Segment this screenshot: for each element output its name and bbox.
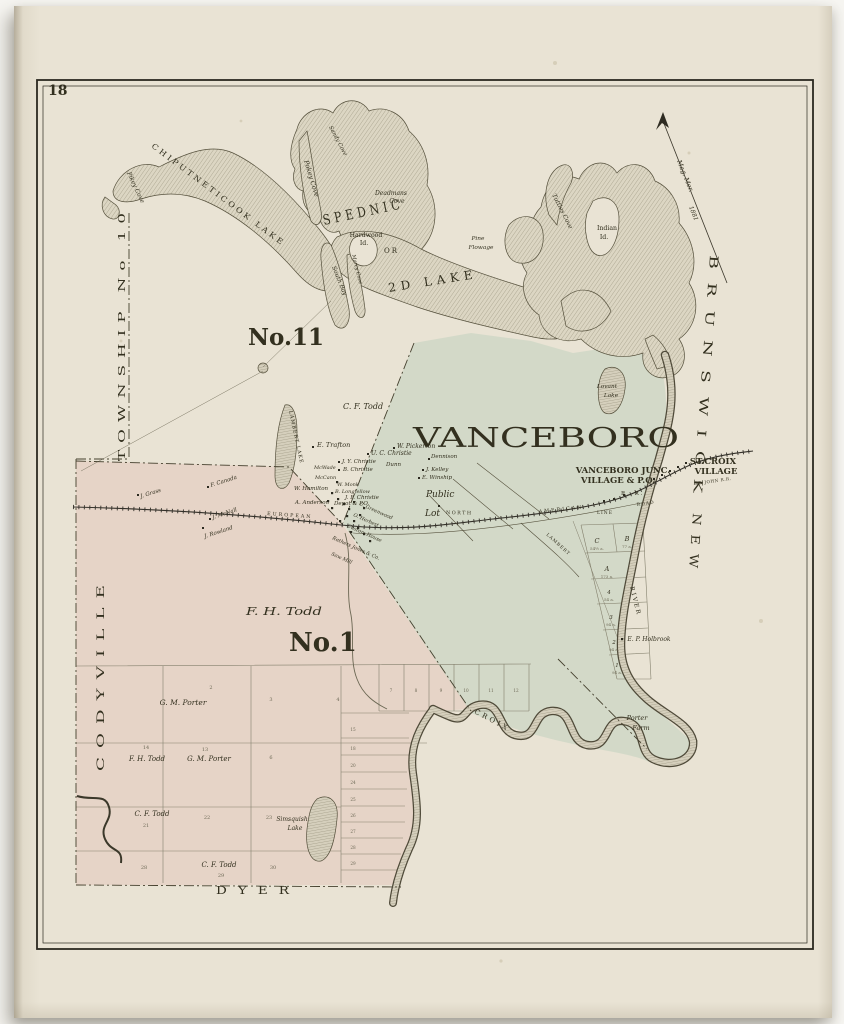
village-lot-acres: 173 a. bbox=[601, 574, 614, 579]
village-lot-acres: 54 a. bbox=[604, 597, 614, 602]
lot-number: 22 bbox=[204, 815, 210, 821]
east-lot-number: 20 bbox=[350, 763, 356, 768]
village-lot-id: 2 bbox=[611, 640, 616, 646]
label-deadmans-1: Deadmans bbox=[374, 190, 407, 197]
label-st-croix-2: VILLAGE bbox=[694, 467, 738, 477]
label-public-lot: Lot bbox=[424, 509, 440, 519]
east-lot-number: 29 bbox=[350, 861, 356, 866]
label-rr: R. R. bbox=[621, 491, 645, 497]
lot-number: 23 bbox=[266, 815, 272, 821]
label-indian-2: Id. bbox=[600, 234, 608, 241]
label-river: RIVER bbox=[628, 586, 642, 617]
label-vanceboro-junction-2: VILLAGE & P.O. bbox=[580, 476, 655, 486]
settler-dennison: Dennison bbox=[430, 454, 458, 460]
strip-lot-number: 11 bbox=[488, 688, 494, 693]
lot-number: 4 bbox=[336, 697, 339, 703]
village-lot-acres: 94 a. bbox=[612, 670, 622, 675]
label-vanceboro: VANCEBORO bbox=[412, 423, 679, 454]
label-deadmans-2: Cove bbox=[389, 198, 405, 205]
settler-a-anderson: A. Anderson bbox=[294, 500, 330, 506]
village-lot-acres: 54½ a. bbox=[590, 546, 604, 551]
east-lot-number: 26 bbox=[350, 813, 356, 818]
survey-pond bbox=[258, 363, 268, 373]
label-no1: No.1 bbox=[289, 628, 357, 658]
settler-cf-todd: C. F. Todd bbox=[343, 402, 383, 411]
village-lot-id: 4 bbox=[606, 590, 611, 596]
strip-lot-number: 8 bbox=[415, 688, 418, 693]
label-st-croix-1: ST.CROIX bbox=[690, 457, 737, 467]
lot-number: 13 bbox=[202, 747, 208, 753]
settler-w-hamilton: W. Hamilton bbox=[294, 486, 329, 492]
village-lot-acres: 94 a. bbox=[606, 622, 616, 627]
settler-w-monk: W. Monk bbox=[337, 482, 359, 488]
village-lot-id: B bbox=[624, 535, 630, 543]
label-simsquish-2: Lake bbox=[287, 825, 303, 832]
settler-w-pickerton: W. Pickerton bbox=[397, 443, 435, 450]
lot-owner-cf-todd-2: C. F. Todd bbox=[201, 861, 237, 869]
village-lot-id: 1 bbox=[615, 663, 619, 669]
settler-ep-holbrook: E. P. Holbrook bbox=[626, 636, 671, 643]
margin-dyer: DYER bbox=[216, 884, 300, 897]
label-hardwood-2: Id. bbox=[360, 240, 368, 247]
east-lot-number: 25 bbox=[350, 797, 356, 802]
label-public: Public bbox=[425, 490, 454, 500]
strip-lot-number: 9 bbox=[440, 688, 443, 693]
label-or: OR bbox=[384, 247, 399, 255]
margin-codyville: CODYVILLE bbox=[96, 576, 107, 771]
label-hardwood-1: Hardwood bbox=[350, 232, 383, 239]
map-canvas: 18 TOWNSHIP No 10 CODYVILLE DYER BRUNSWI… bbox=[14, 6, 832, 1018]
village-lot-acres: 94 a. bbox=[609, 647, 619, 652]
label-lovant-1: Lovant bbox=[596, 384, 618, 390]
settler-dunn: Dunn bbox=[385, 462, 401, 468]
lot-number: 29 bbox=[218, 873, 224, 879]
settler-porter-farm-1: Porter bbox=[626, 714, 649, 722]
lot-number: 3 bbox=[269, 697, 272, 703]
compass-arrow-icon bbox=[656, 112, 669, 130]
label-line: LINE bbox=[597, 510, 613, 516]
settler-porter-farm-2: Farm bbox=[631, 724, 649, 732]
label-no11: No.11 bbox=[248, 324, 324, 351]
lot-owner-fh-todd: F. H. Todd bbox=[128, 755, 166, 763]
settler-b-christie: B. Christie bbox=[342, 467, 373, 473]
strip-lot-number: 7 bbox=[390, 688, 393, 693]
strip-lot-number: 12 bbox=[513, 688, 519, 693]
margin-township-no10: TOWNSHIP No 10 bbox=[117, 206, 128, 461]
atlas-page: 18 TOWNSHIP No 10 CODYVILLE DYER BRUNSWI… bbox=[14, 6, 832, 1018]
label-simsquish-1: Simsquish bbox=[276, 816, 308, 823]
settler-uc-christie: U. C. Christie bbox=[371, 450, 412, 457]
lot-number: 21 bbox=[143, 823, 149, 829]
lot-number: 30 bbox=[270, 865, 276, 871]
lot-owner-gm-porter-1: G. M. Porter bbox=[160, 698, 207, 707]
village-lot-acres: 77 a. bbox=[622, 544, 632, 549]
settler-j-kelley: J. Kelley bbox=[425, 467, 449, 473]
village-lot-id: 3 bbox=[609, 615, 613, 621]
lot-owner-cf-todd-1: C. F. Todd bbox=[134, 810, 170, 818]
lot-number: 6 bbox=[269, 755, 272, 761]
label-lovant-2: Lake bbox=[603, 393, 619, 399]
settler-e-winship: E. Winship bbox=[421, 475, 452, 481]
label-indian-1: Indian bbox=[597, 225, 617, 232]
lot-owner-gm-porter-2: G. M. Porter bbox=[187, 755, 231, 763]
lot-number: 28 bbox=[141, 865, 147, 871]
settler-jy-christie: J. Y. Christie bbox=[341, 459, 377, 465]
east-lot-number: 24 bbox=[350, 780, 356, 785]
margin-new: NEW bbox=[686, 513, 704, 578]
village-lot-id: A bbox=[604, 565, 610, 573]
settler-e-trafton: E. Trafton bbox=[316, 441, 350, 449]
east-lot-number: 27 bbox=[350, 829, 356, 834]
village-lot-id: C bbox=[595, 537, 600, 545]
lot-number: 2 bbox=[209, 685, 212, 691]
east-lot-number: 18 bbox=[350, 746, 356, 751]
label-vanceboro-junction-1: VANCEBORO JUNC. bbox=[575, 466, 671, 476]
strip-lot-number: 10 bbox=[463, 688, 469, 693]
label-pine-2: Flowage bbox=[468, 245, 494, 251]
settler-mcwade: McWade bbox=[313, 465, 336, 471]
lot-number: 14 bbox=[143, 745, 149, 751]
settler-mccann: McCann bbox=[314, 475, 336, 481]
page-number: 18 bbox=[48, 83, 67, 99]
east-lot-number: 28 bbox=[350, 845, 356, 850]
label-rr-north: NORTH bbox=[446, 510, 473, 516]
label-pine-1: Pine bbox=[471, 236, 485, 242]
east-lot-number: 15 bbox=[350, 727, 356, 732]
label-fh-todd-large: F. H. Todd bbox=[245, 605, 322, 618]
compass-label: Mag. Mer. bbox=[675, 158, 695, 193]
